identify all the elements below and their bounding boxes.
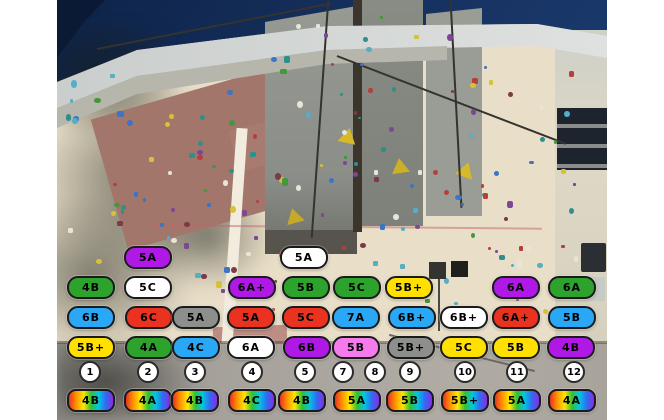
circuit-grade-label: 4A xyxy=(124,389,172,412)
lane-number-badge: 12 xyxy=(563,361,585,383)
circuit-grade-label: 4C xyxy=(228,389,276,412)
route-grade-label: 4B xyxy=(547,336,595,359)
route-grade-label: 5A xyxy=(172,306,220,329)
route-grade-label: 5C xyxy=(333,276,381,299)
lane-number-badge: 11 xyxy=(506,361,528,383)
lane-number-badge: 5 xyxy=(294,361,316,383)
route-grade-label: 5B+ xyxy=(387,336,435,359)
lane-number-badge: 10 xyxy=(454,361,476,383)
route-grade-label: 6C xyxy=(125,306,173,329)
route-grade-label: 5B xyxy=(332,336,380,359)
route-grade-label: 5B xyxy=(492,336,540,359)
climbing-wall-screenshot: 5A5A4B5C6A+5B5C5B+6A6A6B6C5A5A5C7A6B+6B+… xyxy=(0,0,664,420)
route-grade-label: 5B xyxy=(548,306,596,329)
circuit-grade-label: 4A xyxy=(548,389,596,412)
route-grade-label: 5C xyxy=(282,306,330,329)
route-grade-label: 6B+ xyxy=(388,306,436,329)
lane-number-badge: 4 xyxy=(241,361,263,383)
circuit-grade-label: 5B xyxy=(386,389,434,412)
route-grade-label: 5B+ xyxy=(385,276,433,299)
route-grade-label: 5A xyxy=(280,246,328,269)
circuit-grade-label: 4B xyxy=(278,389,326,412)
route-grade-label: 6A xyxy=(227,336,275,359)
route-grade-label: 5C xyxy=(124,276,172,299)
route-grade-label: 4C xyxy=(172,336,220,359)
lane-number-badge: 2 xyxy=(137,361,159,383)
lane-number-badge: 9 xyxy=(399,361,421,383)
route-grade-label: 6B+ xyxy=(440,306,488,329)
route-grade-label: 5C xyxy=(440,336,488,359)
route-grade-label: 6B xyxy=(283,336,331,359)
route-grade-label: 6A xyxy=(492,276,540,299)
route-grade-label: 5B+ xyxy=(67,336,115,359)
route-grade-label: 6A+ xyxy=(492,306,540,329)
route-grade-label: 4A xyxy=(125,336,173,359)
route-grade-label: 6B xyxy=(67,306,115,329)
labels-layer: 5A5A4B5C6A+5B5C5B+6A6A6B6C5A5A5C7A6B+6B+… xyxy=(0,0,664,420)
route-grade-label: 6A xyxy=(548,276,596,299)
route-grade-label: 5A xyxy=(124,246,172,269)
lane-number-badge: 7 xyxy=(332,361,354,383)
route-grade-label: 7A xyxy=(332,306,380,329)
circuit-grade-label: 4B xyxy=(67,389,115,412)
circuit-grade-label: 5A xyxy=(493,389,541,412)
circuit-grade-label: 4B xyxy=(171,389,219,412)
route-grade-label: 5A xyxy=(227,306,275,329)
lane-number-badge: 8 xyxy=(364,361,386,383)
circuit-grade-label: 5A xyxy=(333,389,381,412)
lane-number-badge: 3 xyxy=(184,361,206,383)
lane-number-badge: 1 xyxy=(79,361,101,383)
route-grade-label: 4B xyxy=(67,276,115,299)
route-grade-label: 5B xyxy=(282,276,330,299)
circuit-grade-label: 5B+ xyxy=(441,389,489,412)
route-grade-label: 6A+ xyxy=(228,276,276,299)
